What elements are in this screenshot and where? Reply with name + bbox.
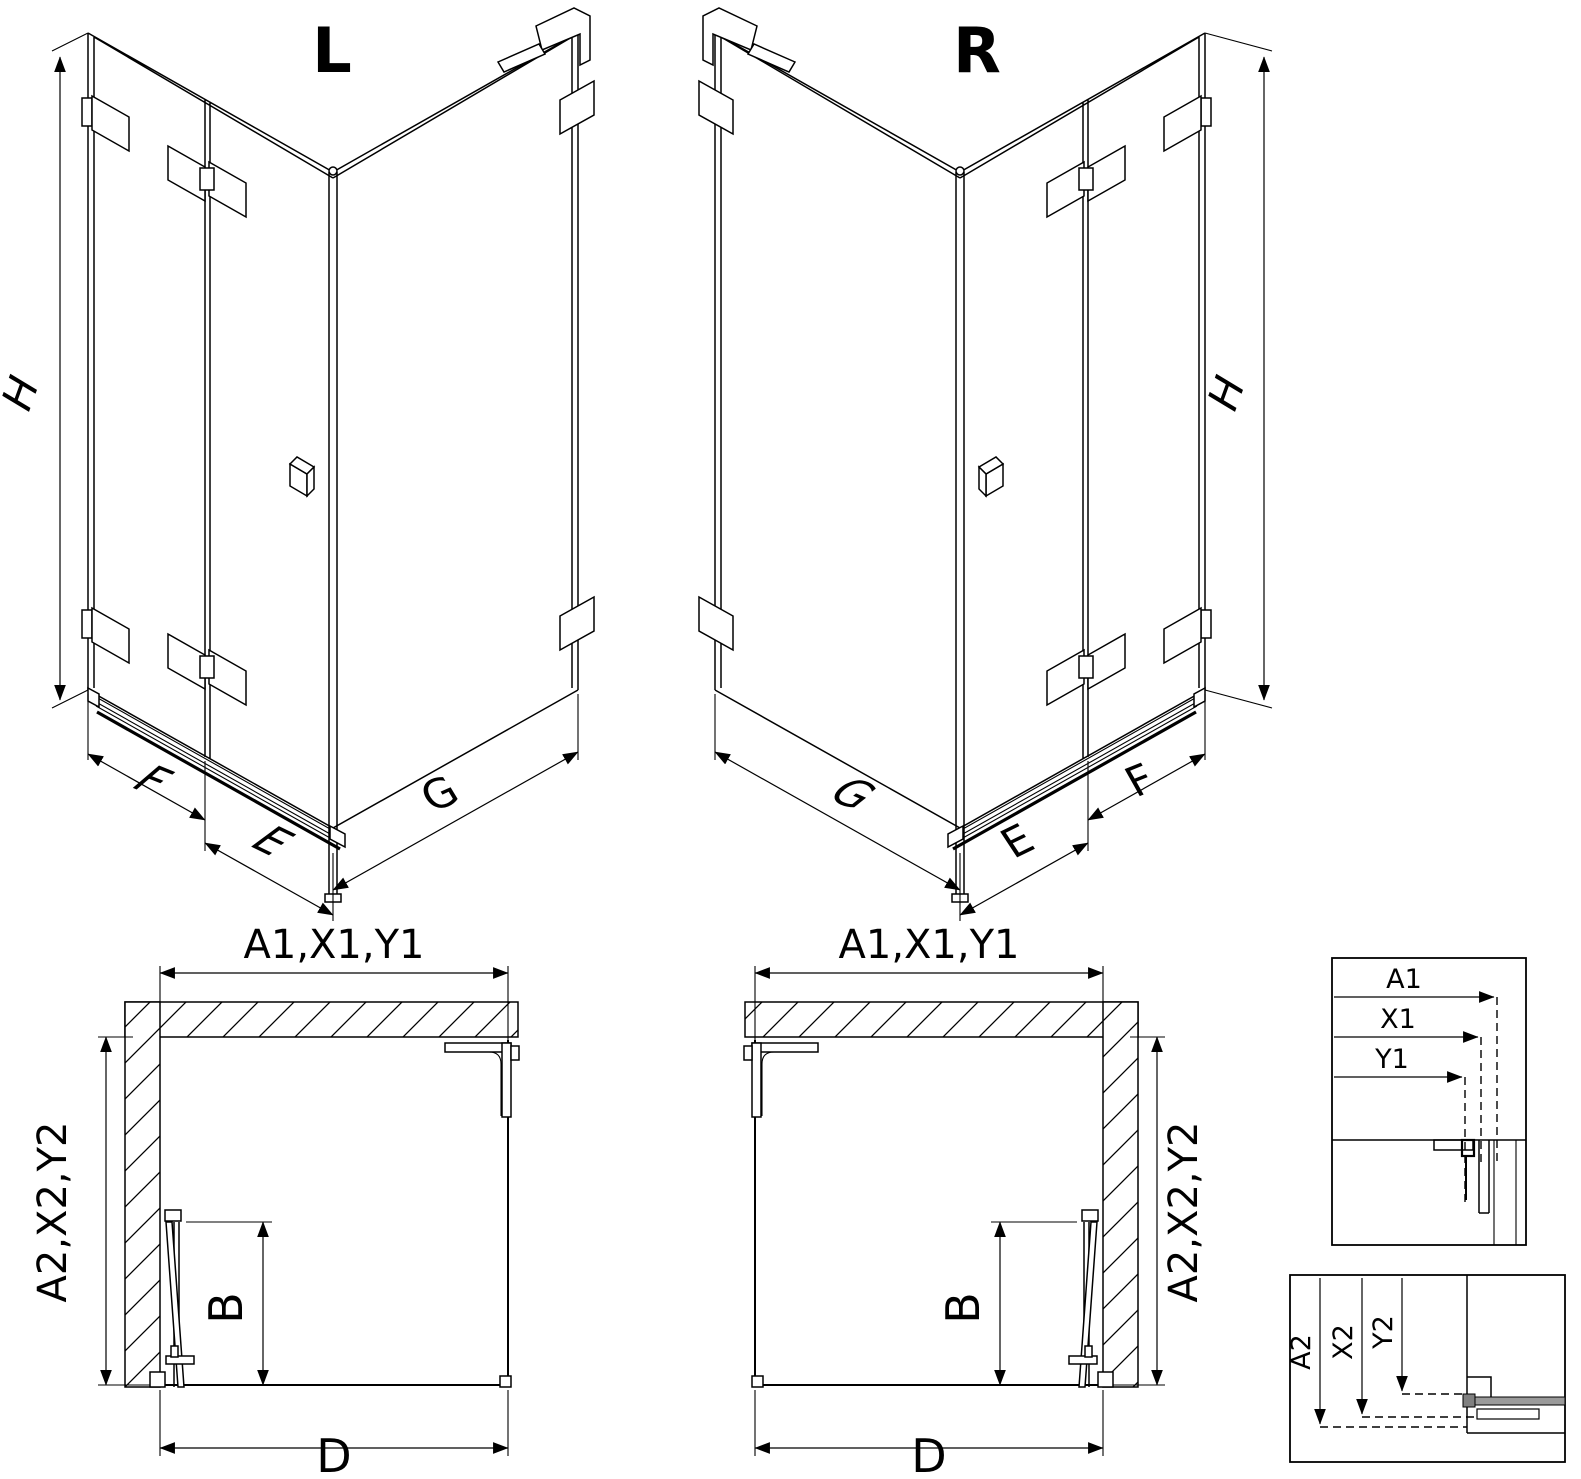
- corner-post: [329, 172, 337, 899]
- dim-label-f-right: F: [1113, 756, 1169, 805]
- plan-view-left: [98, 966, 519, 1456]
- detail-y2-label: Y2: [1368, 1315, 1399, 1350]
- dim-label-g-right: G: [821, 769, 885, 820]
- plan-right-base-label: D: [911, 1429, 946, 1479]
- dim-label-e-right: E: [988, 817, 1048, 866]
- plan-left-depth-label: A2,X2,Y2: [30, 1122, 76, 1303]
- iso-left-title: L: [312, 14, 352, 87]
- detail-width-measurements: A1 X1 Y1: [1332, 958, 1526, 1245]
- plan-right-width-label: A1,X1,Y1: [839, 922, 1020, 968]
- plan-view-right: [744, 966, 1165, 1456]
- height-dimension-left: [52, 33, 88, 708]
- dim-label-h-left: H: [0, 370, 49, 416]
- height-dimension-right: [1205, 33, 1272, 708]
- dim-label-h-right: H: [1198, 370, 1255, 416]
- top-wall-bracket: [498, 8, 590, 72]
- wall-top-hatched: [125, 1002, 518, 1037]
- plan-left-door-label: B: [199, 1292, 253, 1324]
- plan-right-depth-label: A2,X2,Y2: [1161, 1122, 1207, 1303]
- wall-left-hatched: [125, 1002, 160, 1387]
- detail-a1-label: A1: [1386, 964, 1422, 995]
- dim-label-g-left: G: [408, 769, 472, 820]
- corner-bracket: [445, 1043, 519, 1117]
- door-hinges: [168, 146, 246, 705]
- iso-right-title: R: [953, 14, 1001, 87]
- detail-x2-label: X2: [1328, 1324, 1359, 1360]
- plan-right-door-label: B: [936, 1292, 990, 1324]
- dim-label-e-left: E: [242, 817, 302, 866]
- plan-left-width-label: A1,X1,Y1: [244, 922, 425, 968]
- tray-profile-section: [1463, 1377, 1565, 1419]
- detail-y1-label: Y1: [1374, 1044, 1409, 1075]
- wall-clamps: [560, 81, 594, 650]
- corner-bracket: [744, 1043, 818, 1117]
- bottom-dimensions: [88, 694, 578, 921]
- detail-depth-measurements: A2 X2 Y2: [1286, 1275, 1565, 1462]
- wall-profile-section: [1434, 1140, 1516, 1245]
- shower-enclosure-technical-diagram: L R H F E G H G E F: [0, 0, 1581, 1479]
- wall-top-hatched: [745, 1002, 1138, 1037]
- wall-right-hatched: [1103, 1002, 1138, 1387]
- wall-hinges: [82, 96, 129, 663]
- detail-a2-label: A2: [1286, 1334, 1317, 1370]
- plan-left-base-label: D: [316, 1429, 351, 1479]
- dim-label-f-left: F: [125, 757, 181, 806]
- detail-x1-label: X1: [1380, 1004, 1416, 1035]
- door-handle: [290, 457, 314, 496]
